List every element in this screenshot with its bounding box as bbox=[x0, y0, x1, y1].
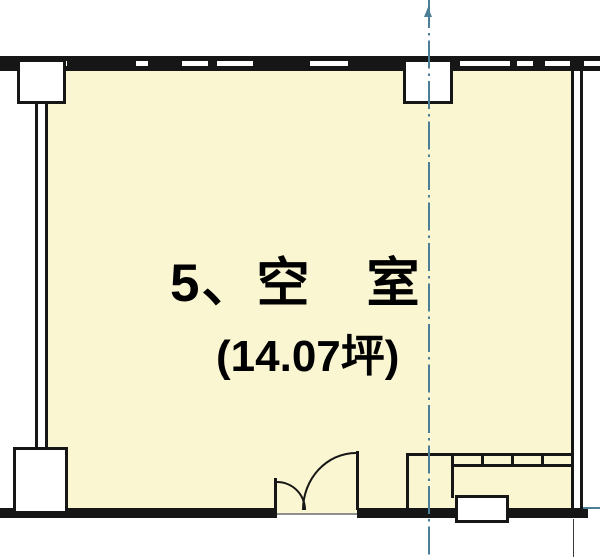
window-glazing-segment bbox=[136, 61, 148, 66]
room-label: 5、空 室 bbox=[170, 257, 421, 310]
window-glazing-segment bbox=[310, 61, 348, 66]
counter-divider bbox=[481, 453, 484, 467]
counter-divider bbox=[451, 453, 454, 498]
window-glazing-segment bbox=[584, 61, 600, 66]
counter-divider bbox=[511, 453, 514, 467]
counter-divider bbox=[541, 453, 544, 467]
left-wall-line bbox=[45, 104, 48, 448]
window-glazing-segment bbox=[545, 61, 570, 66]
room-label-text: 5、空 室 bbox=[170, 254, 421, 313]
sink-unit bbox=[455, 495, 509, 523]
door-leaf-big bbox=[356, 451, 359, 510]
window-glazing-segment bbox=[182, 61, 208, 66]
centerline-arrow-icon bbox=[424, 7, 432, 17]
pillar-top-left bbox=[17, 59, 66, 104]
area-label: (14.07坪) bbox=[216, 335, 399, 379]
right-wall-outer-line bbox=[580, 71, 583, 518]
window-glazing-segment bbox=[517, 61, 533, 66]
centerline-right-wall bbox=[573, 519, 574, 557]
left-wall-line bbox=[35, 104, 38, 448]
floor-plan: 5、空 室 (14.07坪) bbox=[0, 0, 600, 557]
area-label-text: (14.07坪) bbox=[216, 332, 399, 381]
window-glazing-segment bbox=[217, 61, 253, 66]
right-wall-inner-line bbox=[571, 71, 574, 518]
top-wall bbox=[0, 56, 600, 71]
column-bottom-left bbox=[13, 447, 68, 514]
kitchen-counter-left-line bbox=[406, 453, 409, 508]
window-glazing-segment bbox=[460, 61, 510, 66]
centerline-vertical bbox=[428, 0, 430, 557]
centerline-horizontal bbox=[583, 507, 600, 509]
kitchen-counter-top-line bbox=[406, 453, 571, 456]
